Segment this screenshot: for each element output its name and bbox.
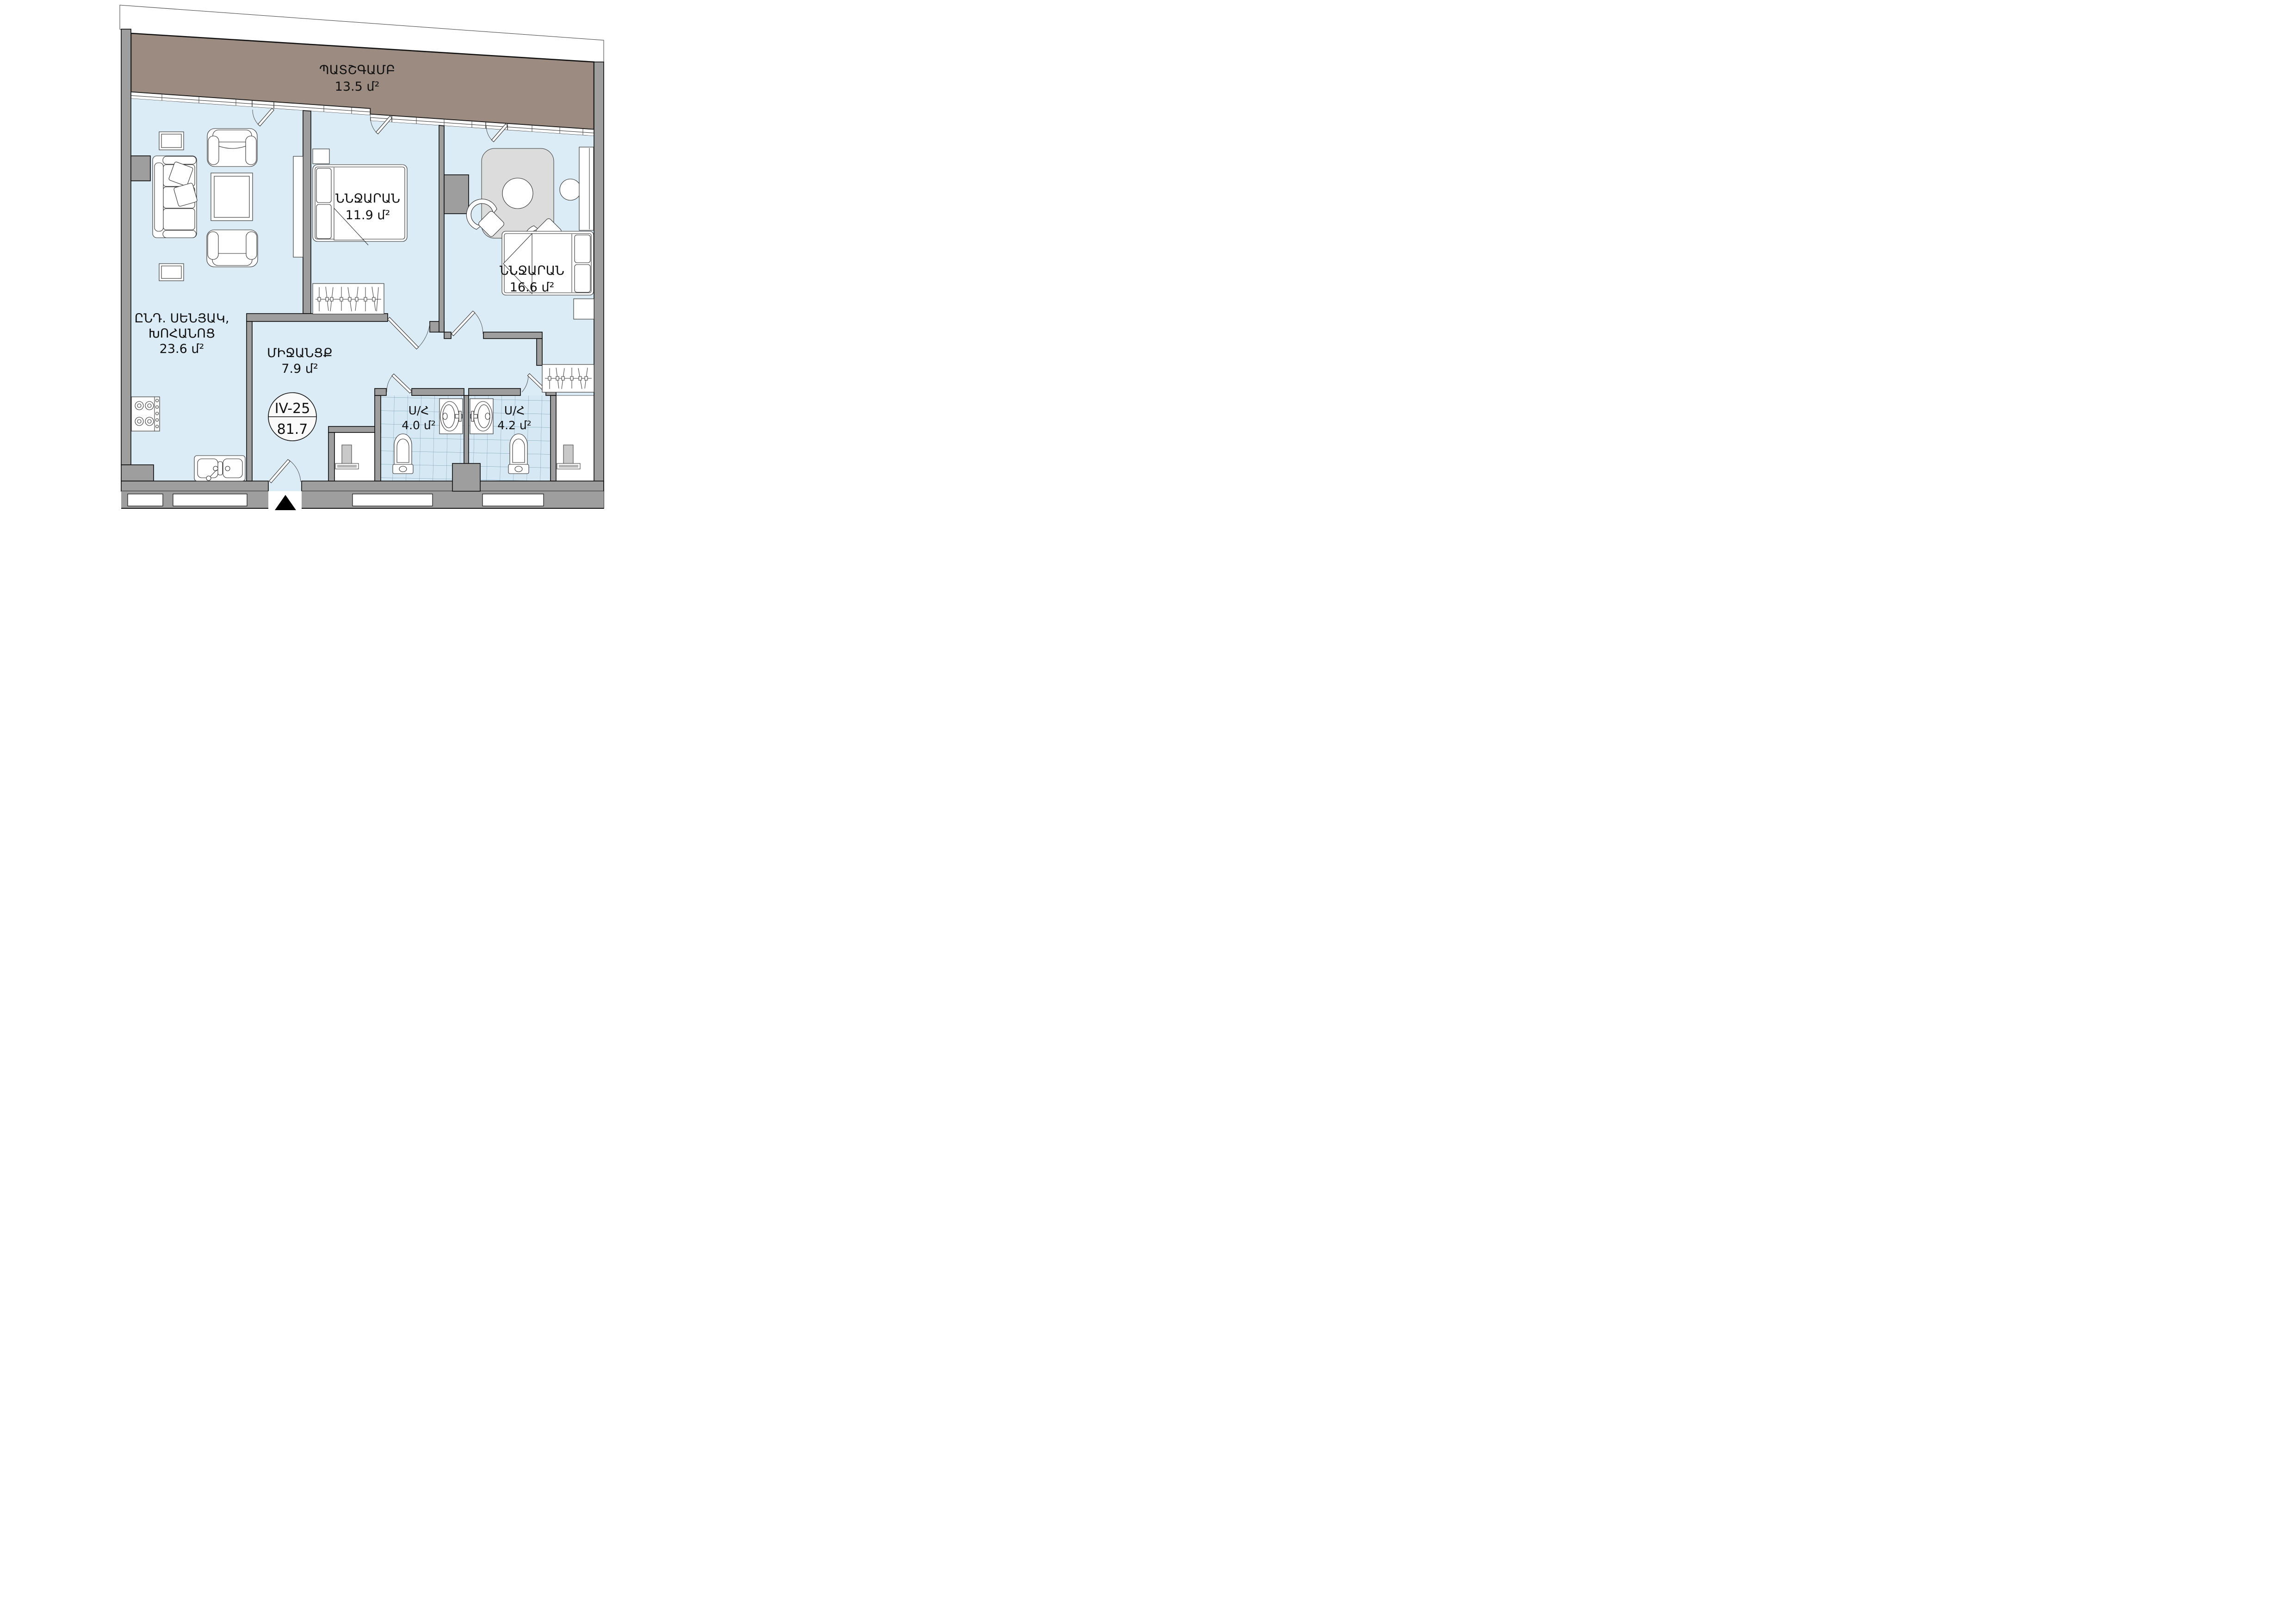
wall-living-bedroom1 bbox=[303, 111, 311, 314]
window-kitchen-1 bbox=[128, 494, 163, 506]
unit-total-area: 81.7 bbox=[277, 421, 308, 438]
area-bath2: 4.2 մ² bbox=[497, 419, 532, 432]
label-living-line2: ԽՈՀԱՆՈՑ bbox=[149, 327, 215, 341]
area-bath1: 4.0 մ² bbox=[402, 419, 436, 432]
wall-cross-block bbox=[452, 463, 480, 491]
label-balcony: ՊԱՏՇԳԱՄԲ bbox=[319, 63, 395, 77]
side-table-top bbox=[159, 132, 184, 150]
label-bedroom1: ՆՆՋԱՐԱՆ bbox=[335, 191, 400, 206]
label-living-line1: ԸՆԴ. ՍԵՆՅԱԿ, bbox=[135, 311, 229, 326]
wall-bedroom2-bottom-a bbox=[444, 332, 451, 339]
sofa-symbol bbox=[153, 156, 198, 238]
desk-bedroom2 bbox=[579, 147, 594, 230]
sink-bath1 bbox=[439, 399, 463, 434]
kitchen-sink bbox=[194, 456, 245, 481]
entry-vestibule bbox=[334, 432, 375, 481]
area-bedroom1: 11.9 մ² bbox=[346, 208, 390, 222]
sink-bath2 bbox=[470, 399, 493, 434]
area-bedroom2: 16.6 մ² bbox=[510, 280, 555, 295]
wall-bath1-top-a bbox=[375, 389, 386, 395]
wall-vestibule-top bbox=[328, 426, 381, 432]
coffee-table bbox=[211, 173, 253, 221]
unit-badge: IV-25 81.7 bbox=[268, 393, 316, 441]
floor-plan-page: IV-25 81.7 ՊԱՏՇԳԱՄԲ 13.5 մ² ՆՆՋԱՐԱՆ 11.9… bbox=[0, 0, 725, 513]
wall-bath2-top-a bbox=[469, 389, 520, 395]
wall-bedroom2-bottom-b bbox=[483, 332, 542, 339]
nightstand-bedroom2 bbox=[574, 299, 594, 319]
wall-bottom-band-left bbox=[121, 481, 268, 491]
toilet-bath1 bbox=[393, 434, 413, 474]
wall-bath2-right bbox=[551, 395, 556, 481]
area-hallway: 7.9 մ² bbox=[281, 362, 318, 376]
wall-stub-wardrobe2 bbox=[537, 339, 542, 365]
window-bath1 bbox=[353, 494, 433, 506]
toilet-bath2 bbox=[508, 434, 529, 474]
wall-bath1-top-b bbox=[412, 389, 464, 395]
area-living: 23.6 մ² bbox=[160, 342, 204, 356]
side-table-bottom bbox=[159, 264, 184, 281]
wall-column-bedroom2 bbox=[444, 175, 469, 214]
floor-plan-drawing: IV-25 81.7 ՊԱՏՇԳԱՄԲ 13.5 մ² ՆՆՋԱՐԱՆ 11.9… bbox=[0, 0, 725, 513]
wall-bedroom1-bedroom2 bbox=[439, 125, 444, 332]
wall-kitchen-jog bbox=[121, 465, 154, 481]
label-bath2: Ս/Հ bbox=[504, 404, 525, 417]
round-table bbox=[502, 178, 533, 209]
wall-vestibule-left bbox=[328, 432, 334, 481]
wall-right-exterior bbox=[594, 62, 604, 508]
nightstand-bedroom1 bbox=[313, 149, 329, 164]
stool-bedroom2 bbox=[560, 179, 581, 200]
label-hallway: ՄԻՋԱՆՑՔ bbox=[267, 346, 333, 360]
wall-left-exterior bbox=[121, 29, 131, 465]
wall-pilaster-left bbox=[131, 156, 150, 181]
stove-symbol bbox=[131, 397, 160, 431]
window-kitchen-2 bbox=[173, 494, 247, 506]
wall-living-hallway bbox=[247, 321, 252, 481]
label-bath1: Ս/Հ bbox=[408, 404, 429, 417]
window-bath2 bbox=[483, 494, 544, 506]
armchair-top bbox=[207, 129, 257, 167]
wall-under-wardrobe bbox=[247, 314, 388, 321]
unit-code: IV-25 bbox=[275, 401, 310, 417]
label-bedroom2: ՆՆՋԱՐԱՆ bbox=[500, 264, 564, 278]
wardrobe-bedroom2 bbox=[542, 364, 594, 392]
wall-bath1-left bbox=[375, 395, 381, 481]
area-balcony: 13.5 մ² bbox=[335, 80, 380, 94]
wardrobe-bedroom1 bbox=[313, 284, 384, 314]
tv-cabinet bbox=[293, 156, 303, 257]
armchair-bottom bbox=[207, 230, 258, 267]
